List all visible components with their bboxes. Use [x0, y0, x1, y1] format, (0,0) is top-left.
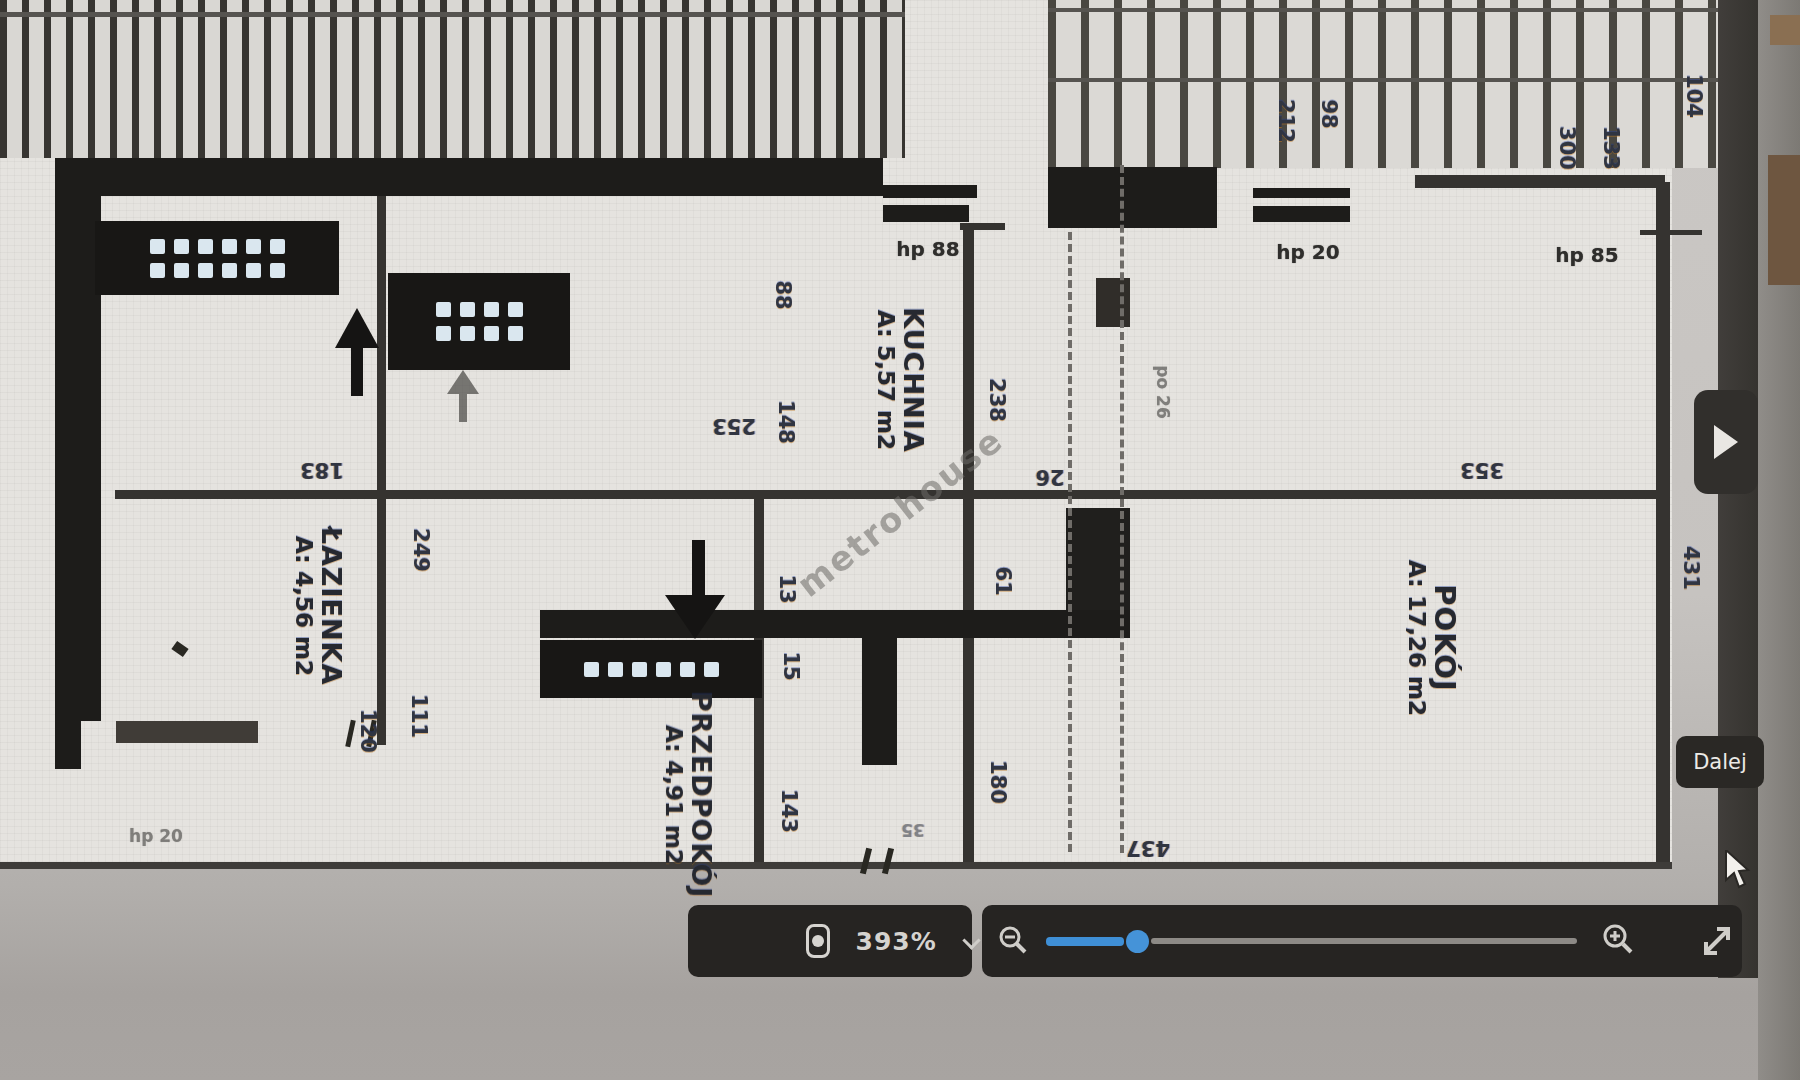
- zoom-out-icon[interactable]: [996, 924, 1030, 958]
- dashed-line: [1068, 232, 1072, 852]
- dimension-label: 15: [779, 651, 803, 680]
- cabinet-block: [388, 273, 570, 370]
- toolbar-left-segment: 393%: [688, 905, 972, 977]
- zoom-level-value[interactable]: 393%: [856, 927, 937, 956]
- hatch-strip-left: [0, 0, 905, 158]
- door-leaf: [1096, 278, 1130, 327]
- dimension-label: 249: [409, 528, 433, 572]
- wall-bathroom-right: [377, 196, 386, 745]
- fullscreen-icon[interactable]: [1695, 919, 1739, 963]
- door-leaf: [862, 630, 897, 765]
- hatch-line: [1048, 78, 1718, 82]
- dimension-label: 431: [1679, 546, 1703, 590]
- hatch-line: [0, 12, 905, 17]
- dimension-label: 437: [1126, 836, 1170, 860]
- camera-icon[interactable]: [806, 924, 830, 958]
- dimension-label: 300: [1555, 126, 1579, 170]
- dimension-label: 104: [1682, 74, 1706, 118]
- annotation-hp: hp 20: [1276, 240, 1339, 264]
- dimension-tick: [345, 720, 356, 747]
- wall-pier-top: [1048, 167, 1217, 228]
- dimension-label: 35: [901, 820, 925, 840]
- radiator-icon: [1253, 188, 1350, 198]
- dimension-line: [1640, 230, 1702, 235]
- annotation-hp: hp 20: [129, 826, 183, 846]
- photo-edge: [1758, 0, 1800, 1080]
- zoom-slider-filled[interactable]: [1046, 937, 1124, 946]
- radiator-icon: [1253, 206, 1350, 222]
- dimension-label: 183: [300, 458, 344, 482]
- room-label-przedpokoj: PRZEDPOKÓJA: 4,91 m2: [660, 692, 716, 898]
- zoom-slider-track[interactable]: [1151, 938, 1577, 944]
- dimension-label: 133: [1599, 126, 1623, 170]
- radiator-icon: [883, 185, 977, 198]
- floor-plan-image: KUCHNIAA: 5,57 m2 ŁAZIENKAA: 4,56 m2 PRZ…: [0, 0, 1672, 869]
- dimension-line: [1663, 235, 1668, 433]
- zoom-in-icon[interactable]: [1599, 921, 1639, 961]
- dimension-label: 353: [1460, 458, 1504, 482]
- next-button-tooltip[interactable]: Dalej: [1676, 736, 1764, 788]
- dimension-label: 111: [407, 694, 431, 738]
- dimension-tick: [860, 848, 872, 875]
- wall-top-left: [55, 158, 883, 196]
- arrow-right-icon: [1714, 425, 1738, 459]
- dimension-label: 253: [712, 414, 756, 438]
- room-label-pokoj: POKÓJA: 17,26 m2: [1403, 560, 1461, 716]
- chevron-down-icon[interactable]: [963, 932, 972, 950]
- annotation-hp: hp 85: [1555, 243, 1618, 267]
- mouse-cursor: [1724, 850, 1754, 892]
- dimension-label: 238: [985, 378, 1009, 422]
- dimension-label: 26: [1035, 465, 1064, 489]
- cabinet-block: [95, 221, 339, 295]
- dimension-label: 120: [356, 709, 380, 753]
- wall-left-lower: [55, 721, 81, 769]
- dimension-label: 180: [986, 760, 1010, 804]
- annotation-hp: hp 88: [896, 237, 959, 261]
- hatch-line: [1048, 8, 1718, 12]
- cabinet-block: [540, 640, 762, 698]
- dimension-label: 88: [771, 280, 795, 309]
- dimension-tick: [882, 848, 894, 875]
- toolbar-right-segment: [982, 905, 1742, 977]
- dimension-label: 148: [774, 400, 798, 444]
- wall-kitchen-right: [963, 230, 974, 862]
- dimension-label: 143: [777, 789, 801, 833]
- door-lintel: [116, 721, 258, 743]
- dimension-label: 212: [1274, 99, 1298, 143]
- dashed-line: [1120, 165, 1124, 853]
- dimension-line: [960, 223, 1005, 230]
- room-label-lazienka: ŁAZIENKAA: 4,56 m2: [290, 527, 346, 686]
- wall-top-right: [1415, 175, 1665, 188]
- annotation-pencil: po 26: [1153, 365, 1173, 418]
- dimension-label: 61: [991, 566, 1015, 595]
- wall-corridor-bottom: [540, 610, 1130, 638]
- radiator-icon: [883, 205, 969, 222]
- zoom-slider-handle[interactable]: [1126, 930, 1149, 953]
- room-label-kuchnia: KUCHNIAA: 5,57 m2: [872, 307, 928, 452]
- photo-of-screen: KUCHNIAA: 5,57 m2 ŁAZIENKAA: 4,56 m2 PRZ…: [0, 0, 1800, 1080]
- pencil-mark: [171, 641, 188, 657]
- next-image-button[interactable]: [1694, 390, 1758, 494]
- dimension-label: 98: [1317, 99, 1341, 128]
